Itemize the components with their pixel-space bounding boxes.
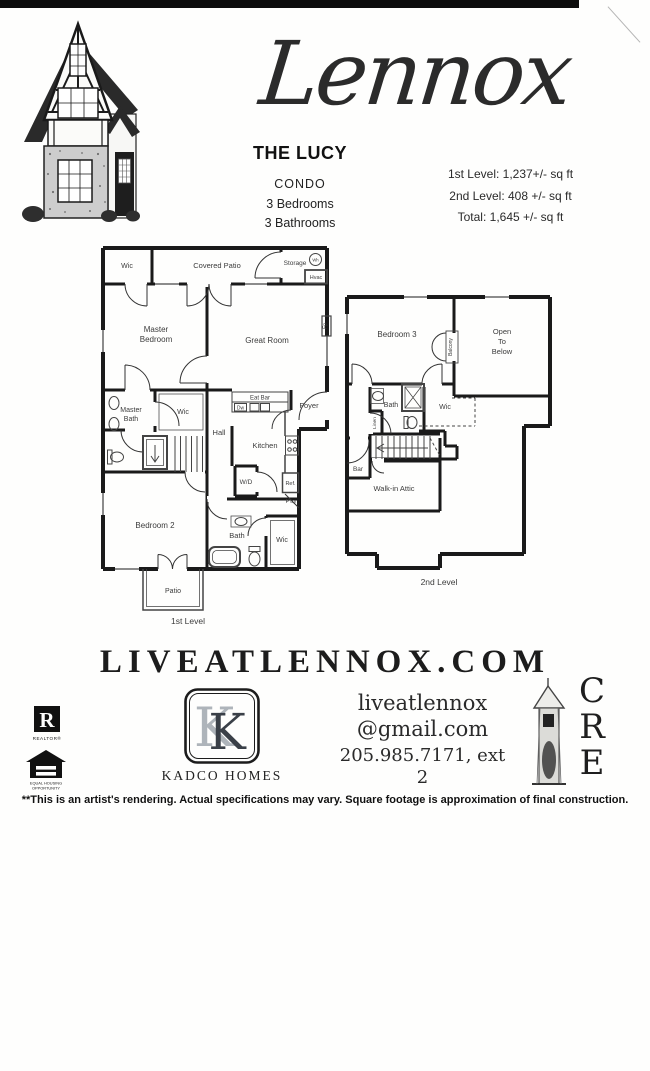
plan2-windows (347, 297, 509, 334)
room-label-master-bedroom-2: Bedroom (140, 335, 173, 344)
square-footage-summary: 1st Level: 1,237+/- sq ft 2nd Level: 408… (428, 164, 593, 229)
room-label-storage: Storage (284, 260, 307, 267)
room-label-master-bedroom-1: Master (144, 325, 169, 334)
sqft-total: Total: 1,645 +/- sq ft (428, 207, 593, 229)
room-label-bedroom2: Bedroom 2 (135, 521, 175, 530)
room-label-patio: Patio (165, 588, 181, 595)
cre-logo: C R E (526, 672, 612, 792)
room-label-wic-bath: Wic (177, 409, 189, 416)
house-stone-story (44, 146, 108, 218)
realtor-r-letter: R (39, 708, 55, 732)
website-url: LIVEATLENNOX.COM (45, 644, 605, 681)
room-label-refrigerator: Ref. (285, 481, 296, 487)
room-label-wic-bedroom: Wic (276, 537, 288, 544)
scan-artifact-bar (0, 0, 579, 8)
room-label-bath3: Bath (384, 402, 399, 409)
room-label-linen: Linen (372, 417, 378, 429)
equal-housing-text-2: OPPORTUNITY (32, 786, 60, 791)
room-label-bar: Bar (353, 466, 364, 473)
equal-housing-logo: EQUAL HOUSING OPPORTUNITY (24, 750, 68, 792)
room-label-water-heater: Wh (312, 258, 319, 263)
room-label-master-bath-2: Bath (124, 416, 139, 423)
plan-name: THE LUCY (230, 143, 370, 164)
room-label-bedroom3: Bedroom 3 (377, 330, 417, 339)
flyer-page: Lennox THE LUCY CONDO 3 Bedrooms 3 Bathr… (0, 0, 650, 1071)
cre-letter-e: E (580, 743, 605, 783)
contact-email-line1: liveatlennox (335, 690, 510, 716)
cre-letter-r: R (579, 707, 606, 747)
bedroom-count: 3 Bedrooms (225, 197, 375, 211)
room-label-great-room: Great Room (245, 336, 289, 345)
room-label-wic3: Wic (439, 404, 451, 411)
bathroom-count: 3 Bathrooms (225, 216, 375, 230)
room-label-washer-dryer: W/D (240, 479, 253, 486)
house-right-wing (104, 106, 140, 218)
contact-email-line2: @gmail.com (335, 716, 510, 742)
room-label-eat-bar: Eat Bar (250, 396, 270, 402)
cre-tower-sketch (532, 678, 566, 784)
realtor-logo: R REALTOR® (26, 706, 68, 748)
floorplan-second-level: Bedroom 3 Balcony Open To Below Bath Lin… (342, 286, 557, 591)
kadco-k-dark: K (208, 703, 247, 761)
room-label-open-1: Open (493, 327, 511, 336)
room-label-balcony: Balcony (448, 338, 454, 356)
property-type: CONDO (230, 177, 370, 191)
room-label-open-3: Below (492, 347, 513, 356)
cre-letters: C R E (579, 672, 606, 783)
room-label-kitchen: Kitchen (252, 441, 277, 450)
room-label-walk-in-attic: Walk-in Attic (374, 484, 415, 493)
room-label-master-bath-1: Master (120, 407, 142, 414)
cre-letter-c: C (579, 672, 605, 711)
room-label-hall: Hall (213, 428, 226, 437)
floorplan-first-level: Wic Covered Patio Storage Wh Hvac Master… (95, 240, 335, 632)
room-label-hvac: Hvac (310, 275, 323, 281)
builder-name: KADCO HOMES (152, 768, 292, 784)
room-label-covered-patio: Covered Patio (193, 261, 241, 270)
community-logo-script: Lennox (245, 28, 585, 120)
room-label-dishwasher: Dw (237, 406, 245, 412)
sqft-level2: 2nd Level: 408 +/- sq ft (428, 186, 593, 208)
room-label-foyer: Foyer (299, 401, 319, 410)
disclaimer-text: **This is an artist's rendering. Actual … (0, 794, 650, 806)
room-label-fireplace: Fp (323, 323, 329, 329)
room-label-bath2: Bath (229, 531, 244, 540)
equal-bar-bottom (36, 772, 56, 776)
sqft-level1: 1st Level: 1,237+/- sq ft (428, 164, 593, 186)
room-label-pantry: P'try (286, 499, 297, 505)
equal-bar-top (36, 766, 56, 770)
contact-phone: 205.985.7171, ext 2 (335, 745, 510, 790)
kadco-monogram-logo: K K (184, 688, 260, 764)
equal-housing-roof-icon (26, 750, 66, 762)
plan1-level-label: 1st Level (171, 616, 205, 626)
plan2-level-label: 2nd Level (421, 577, 458, 587)
room-label-open-2: To (498, 337, 506, 346)
scan-crease-mark (608, 6, 641, 42)
realtor-label: REALTOR® (33, 735, 62, 741)
room-label-wic-closet: Wic (121, 263, 133, 270)
contact-block: liveatlennox @gmail.com 205.985.7171, ex… (335, 690, 510, 790)
house-illustration (20, 14, 142, 226)
